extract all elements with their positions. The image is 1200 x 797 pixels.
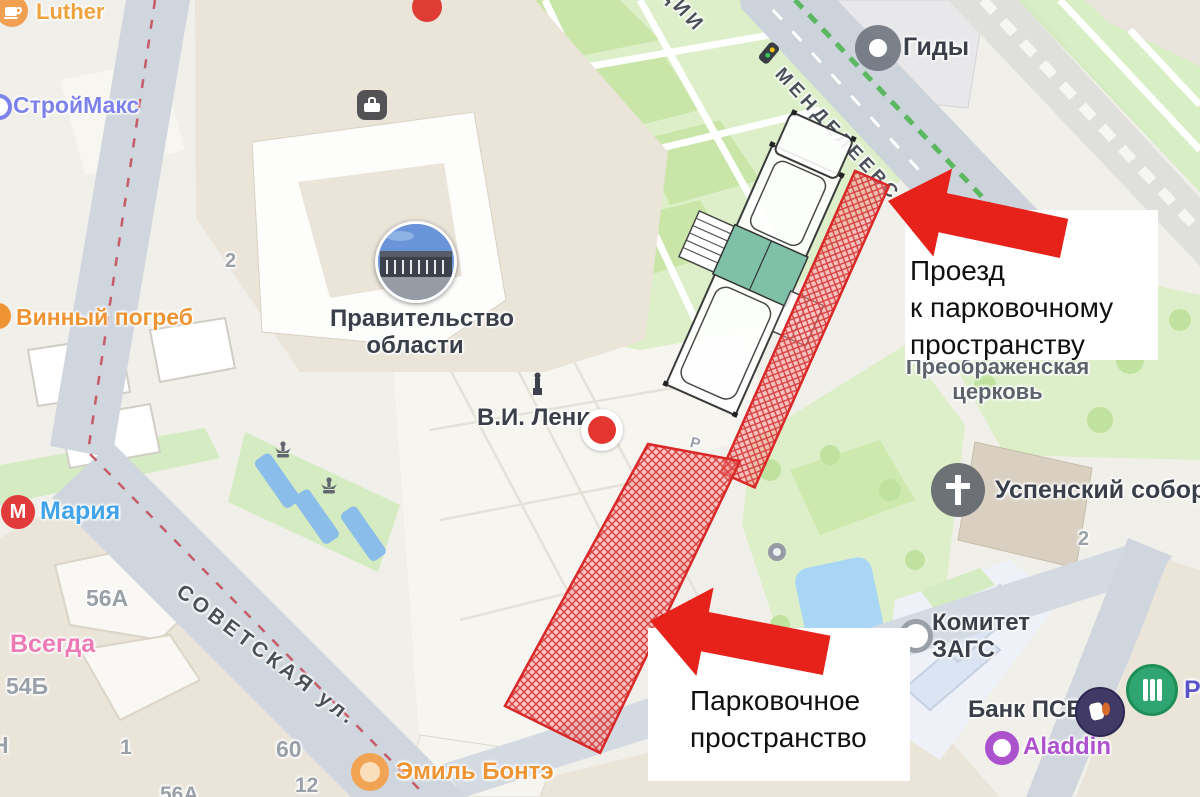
poi-label-bank-partial[interactable]: Ро xyxy=(1184,676,1200,704)
house-number: 56А xyxy=(160,783,199,797)
house-number: Н xyxy=(0,733,9,759)
parking-note-box: Парковочное пространство xyxy=(648,628,910,781)
poi-label-vinny-pogreb[interactable]: Винный погреб xyxy=(16,305,193,331)
house-number: 2 xyxy=(225,250,236,272)
park-statue-icon xyxy=(768,543,786,561)
driveway-note-box: Проезд к парковочному пространству xyxy=(905,210,1158,360)
emil-bonte-icon[interactable] xyxy=(351,753,389,791)
map-screenshot: Luther СтройМакс Винный погреб Правитель… xyxy=(0,0,1200,797)
metro-icon[interactable]: М xyxy=(1,495,35,529)
poi-label-uspensky[interactable]: Успенский собор xyxy=(995,476,1200,504)
house-number: 12 xyxy=(295,774,318,797)
house-number: 2 xyxy=(1078,528,1089,550)
poi-label-government[interactable]: Правительство области xyxy=(330,306,500,360)
house-number: 56А xyxy=(86,586,128,612)
green-bank-icon[interactable] xyxy=(1126,664,1178,716)
poi-label-maria[interactable]: Мария xyxy=(40,497,120,525)
poi-label-luther[interactable]: Luther xyxy=(36,0,104,25)
poi-label-aladdin[interactable]: Aladdin xyxy=(1023,734,1111,761)
church-cross-icon[interactable] xyxy=(931,463,985,517)
poi-label-stroymax[interactable]: СтройМакс xyxy=(13,93,139,119)
poi-label-emil-bonte[interactable]: Эмиль Бонтэ xyxy=(396,759,554,786)
red-dot-marker[interactable] xyxy=(581,409,623,451)
coffee-cup-icon[interactable] xyxy=(0,0,28,27)
briefcase-icon[interactable] xyxy=(357,90,387,120)
government-photo-badge[interactable] xyxy=(375,221,457,303)
house-number: 54Б xyxy=(6,674,48,700)
house-number: 1 xyxy=(120,736,132,760)
poi-label-gidy[interactable]: Гиды xyxy=(903,33,969,61)
bank-psb-icon[interactable] xyxy=(1075,687,1125,737)
poi-label-zags[interactable]: Комитет ЗАГС xyxy=(932,610,1030,664)
house-number: 60 xyxy=(276,737,302,763)
poi-label-bank-psb[interactable]: Банк ПСБ xyxy=(968,697,1084,724)
aladdin-icon[interactable] xyxy=(985,731,1019,765)
poi-label-vsegda[interactable]: Всегда xyxy=(10,630,95,658)
gidy-icon[interactable] xyxy=(855,25,901,71)
